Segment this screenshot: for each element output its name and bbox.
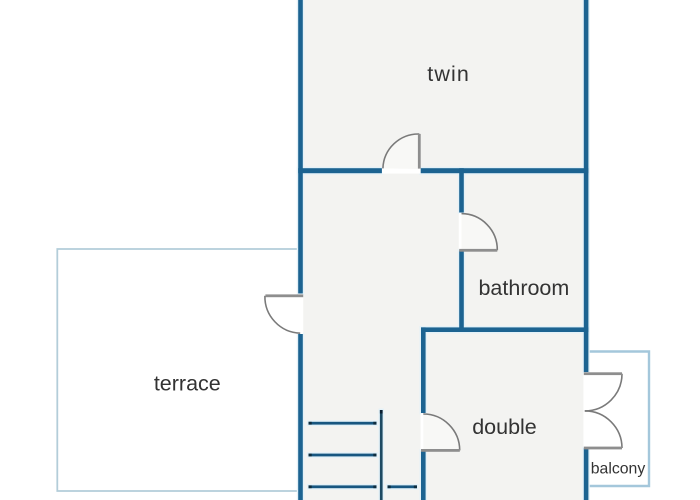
svg-text:double: double <box>472 415 537 439</box>
svg-text:twin: twin <box>427 62 470 86</box>
svg-text:bathroom: bathroom <box>478 276 569 300</box>
svg-text:terrace: terrace <box>154 371 221 395</box>
svg-text:balcony: balcony <box>591 461 646 478</box>
